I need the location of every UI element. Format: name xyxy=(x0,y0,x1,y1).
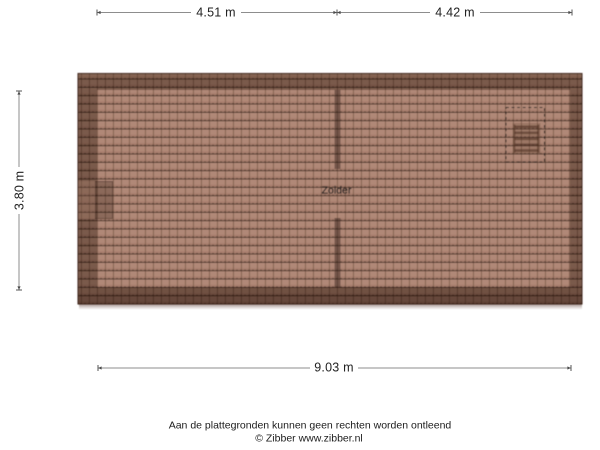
svg-text:4.51 m: 4.51 m xyxy=(196,6,235,20)
svg-text:Aan de plattegronden kunnen ge: Aan de plattegronden kunnen geen rechten… xyxy=(169,420,452,432)
svg-text:4.42 m: 4.42 m xyxy=(435,6,474,20)
svg-text:© Zibber www.zibber.nl: © Zibber www.zibber.nl xyxy=(255,433,363,445)
svg-text:9.03 m: 9.03 m xyxy=(314,361,353,375)
svg-text:Zolder: Zolder xyxy=(322,185,352,197)
svg-text:3.80 m: 3.80 m xyxy=(12,171,26,210)
